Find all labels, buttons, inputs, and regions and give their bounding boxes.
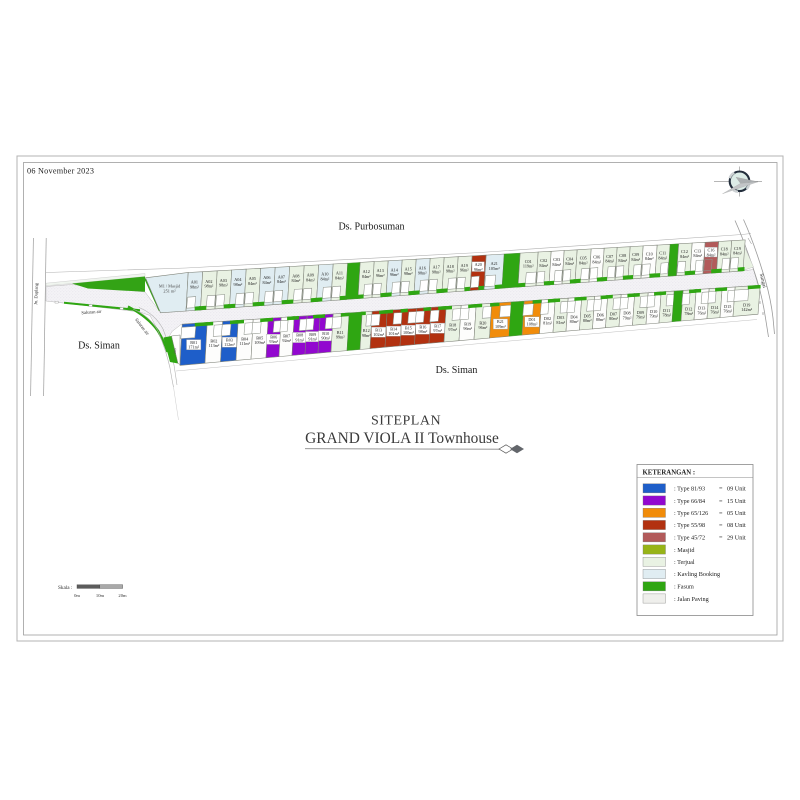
svg-text:171m²: 171m²: [188, 345, 200, 350]
svg-text:98m²: 98m²: [446, 269, 455, 274]
svg-text:84m²: 84m²: [306, 277, 315, 282]
svg-text:142m²: 142m²: [741, 307, 753, 312]
svg-text:96m²: 96m²: [460, 268, 469, 273]
svg-text:84m²: 84m²: [335, 276, 344, 281]
svg-text:84m²: 84m²: [565, 261, 574, 266]
svg-text:84m²: 84m²: [263, 280, 272, 285]
svg-text:112m²: 112m²: [224, 342, 235, 347]
svg-text:: Type 65/126: : Type 65/126: [674, 510, 708, 517]
svg-text:06 November 2023: 06 November 2023: [27, 167, 94, 176]
svg-text:91m²: 91m²: [295, 337, 304, 342]
svg-text:B00: B00: [173, 348, 177, 354]
svg-text:15 Unit: 15 Unit: [727, 498, 746, 505]
svg-text:: Fasum: : Fasum: [674, 584, 694, 591]
svg-text:113m²: 113m²: [209, 343, 220, 348]
svg-text:84m²: 84m²: [539, 263, 548, 268]
svg-text:109m²: 109m²: [254, 340, 266, 345]
svg-text:29 Unit: 29 Unit: [727, 535, 746, 542]
svg-text:98m²: 98m²: [205, 284, 214, 289]
svg-text:101m²: 101m²: [388, 331, 400, 336]
svg-text:79m²: 79m²: [623, 315, 632, 320]
svg-text:84m²: 84m²: [707, 252, 716, 257]
svg-text:0m: 0m: [74, 593, 80, 598]
svg-text:84m²: 84m²: [645, 256, 654, 261]
svg-text:=: =: [719, 535, 723, 542]
svg-text:Ds. Siman: Ds. Siman: [78, 341, 120, 352]
svg-text:98m²: 98m²: [418, 270, 427, 275]
svg-text:: Type 66/84: : Type 66/84: [674, 498, 705, 505]
svg-text:80m²: 80m²: [583, 318, 592, 323]
svg-text:84m²: 84m²: [733, 251, 742, 256]
svg-text:98m²: 98m²: [362, 333, 371, 338]
svg-text:GRAND VIOLA II Townhouse: GRAND VIOLA II Townhouse: [305, 430, 499, 447]
svg-text:=: =: [719, 486, 723, 493]
svg-text:84m²: 84m²: [292, 278, 301, 283]
svg-text:84m²: 84m²: [680, 254, 689, 259]
svg-text:84m²: 84m²: [277, 279, 286, 284]
svg-text:98m²: 98m²: [432, 270, 441, 275]
svg-text:10m: 10m: [96, 593, 105, 598]
svg-text:84m²: 84m²: [720, 252, 729, 257]
svg-text:98m²: 98m²: [234, 282, 243, 287]
svg-text:97m²: 97m²: [433, 328, 442, 333]
svg-text:: Kavling Booking: : Kavling Booking: [674, 571, 720, 578]
svg-text:=: =: [719, 522, 723, 529]
svg-text:=: =: [719, 498, 723, 505]
svg-text:KETERANGAN :: KETERANGAN :: [643, 470, 696, 477]
svg-text:96m²: 96m²: [474, 267, 483, 272]
svg-text:96m²: 96m²: [390, 272, 399, 277]
svg-text:84m²: 84m²: [693, 253, 702, 258]
svg-text:84m²: 84m²: [605, 259, 614, 264]
svg-text:81m²: 81m²: [556, 320, 565, 325]
svg-text:96m²: 96m²: [479, 325, 488, 330]
svg-text:98m²: 98m²: [219, 283, 228, 288]
svg-text:80m²: 80m²: [570, 319, 579, 324]
svg-text:108m²: 108m²: [527, 322, 539, 327]
svg-text:80m²: 80m²: [609, 316, 618, 321]
svg-text:: Type 55/98: : Type 55/98: [674, 522, 705, 529]
svg-text:84m²: 84m²: [248, 281, 257, 286]
svg-text:Skala :: Skala :: [58, 585, 73, 591]
svg-text:96m²: 96m²: [463, 326, 472, 331]
svg-text:79m²: 79m²: [649, 314, 658, 319]
svg-text:119m²: 119m²: [523, 264, 534, 269]
svg-text:84m²: 84m²: [552, 262, 561, 267]
svg-text:84m²: 84m²: [631, 257, 640, 262]
svg-text:08 Unit: 08 Unit: [727, 522, 746, 529]
svg-text:: Jalan Paving: : Jalan Paving: [674, 596, 709, 603]
svg-text:: Type 45/72: : Type 45/72: [674, 535, 705, 542]
svg-text:79m²: 79m²: [636, 314, 645, 319]
svg-text:80m²: 80m²: [596, 317, 605, 322]
svg-text:09 Unit: 09 Unit: [727, 486, 746, 493]
svg-text:105m²: 105m²: [489, 266, 501, 271]
svg-text:91m²: 91m²: [308, 336, 317, 341]
svg-text:102m²: 102m²: [373, 332, 385, 337]
svg-text:20m: 20m: [118, 593, 127, 598]
svg-text:84m²: 84m²: [321, 276, 330, 281]
svg-text:: Masjid: : Masjid: [674, 547, 695, 554]
svg-text:76m²: 76m²: [710, 309, 719, 314]
svg-text:92m²: 92m²: [282, 338, 291, 343]
svg-text:: Type 81/93: : Type 81/93: [674, 486, 705, 493]
svg-text:109m²: 109m²: [495, 324, 507, 329]
svg-text:Ds. Purbosuman: Ds. Purbosuman: [338, 222, 404, 233]
svg-text:84m²: 84m²: [362, 274, 371, 279]
svg-text:76m²: 76m²: [723, 309, 732, 314]
svg-text:=: =: [719, 510, 723, 517]
svg-text:96m²: 96m²: [376, 273, 385, 278]
svg-text:98m²: 98m²: [419, 329, 428, 334]
svg-text:84m²: 84m²: [579, 260, 588, 265]
svg-text:Ds. Siman: Ds. Siman: [436, 365, 478, 376]
svg-text:: Terjual: : Terjual: [674, 559, 695, 566]
svg-text:78m²: 78m²: [662, 313, 671, 318]
svg-text:93m²: 93m²: [269, 339, 278, 344]
svg-text:84m²: 84m²: [592, 260, 601, 265]
svg-text:98m²: 98m²: [190, 285, 199, 290]
svg-text:84m²: 84m²: [618, 258, 627, 263]
svg-text:78m²: 78m²: [684, 311, 693, 316]
svg-text:05 Unit: 05 Unit: [727, 510, 746, 517]
svg-text:100m²: 100m²: [403, 330, 415, 335]
svg-text:111m²: 111m²: [239, 341, 250, 346]
svg-text:97m²: 97m²: [448, 327, 457, 332]
svg-text:84m²: 84m²: [658, 255, 667, 260]
svg-text:Jn. Daplang: Jn. Daplang: [33, 282, 39, 305]
svg-text:251 m²: 251 m²: [163, 289, 176, 294]
svg-text:99m²: 99m²: [336, 335, 345, 340]
svg-text:81m²: 81m²: [543, 321, 552, 326]
svg-text:76m²: 76m²: [697, 310, 706, 315]
svg-text:98m²: 98m²: [404, 271, 413, 276]
svg-text:90m²: 90m²: [321, 336, 330, 341]
svg-text:SITEPLAN: SITEPLAN: [371, 414, 441, 429]
